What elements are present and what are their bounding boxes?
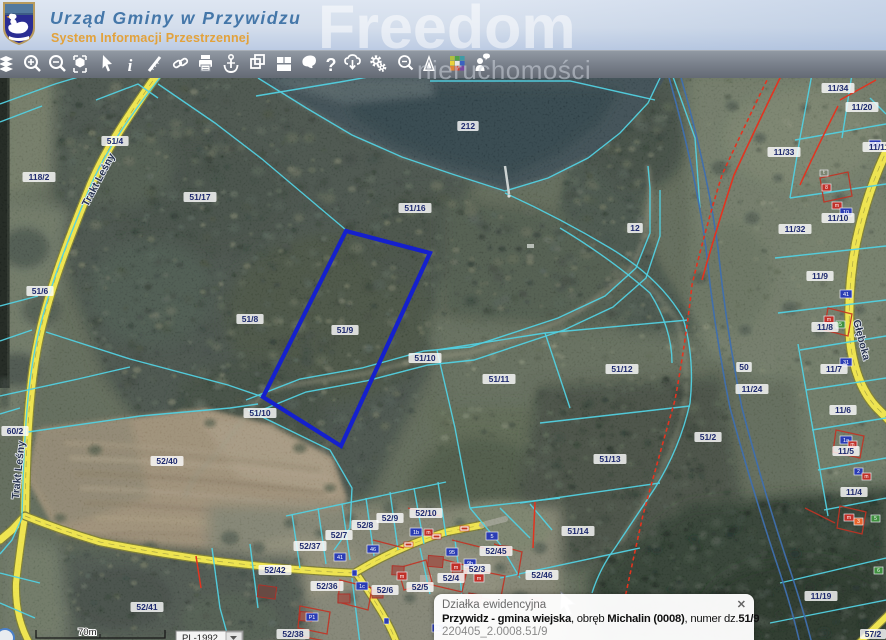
svg-text:m: m bbox=[477, 576, 482, 582]
svg-text:52/4: 52/4 bbox=[443, 573, 460, 583]
svg-text:51/14: 51/14 bbox=[567, 526, 589, 536]
svg-text:52/42: 52/42 bbox=[264, 565, 286, 575]
svg-text:52/9: 52/9 bbox=[382, 513, 399, 523]
svg-text:51/2: 51/2 bbox=[700, 432, 717, 442]
svg-text:m: m bbox=[426, 530, 430, 536]
svg-text:11/10: 11/10 bbox=[828, 213, 849, 223]
svg-text:P1: P1 bbox=[309, 615, 316, 621]
svg-text:51/13: 51/13 bbox=[599, 454, 621, 464]
svg-text:41: 41 bbox=[843, 292, 849, 298]
svg-text:m: m bbox=[835, 203, 839, 209]
svg-text:11/8: 11/8 bbox=[817, 322, 833, 332]
svg-text:11/19: 11/19 bbox=[811, 591, 832, 601]
svg-text:6: 6 bbox=[877, 568, 880, 574]
svg-text:51/11: 51/11 bbox=[489, 374, 510, 384]
svg-text:52/38: 52/38 bbox=[282, 629, 304, 639]
svg-text:11/6: 11/6 bbox=[835, 405, 851, 415]
svg-text:52/5: 52/5 bbox=[412, 582, 429, 592]
svg-text:m: m bbox=[454, 565, 459, 571]
svg-text:m: m bbox=[847, 515, 851, 521]
svg-text:52/37: 52/37 bbox=[299, 541, 321, 551]
svg-text:PL-1992: PL-1992 bbox=[182, 633, 218, 640]
svg-text:51/6: 51/6 bbox=[32, 286, 49, 296]
svg-text:52/10: 52/10 bbox=[415, 508, 437, 518]
svg-text:11/4: 11/4 bbox=[846, 487, 862, 497]
svg-text:1b: 1b bbox=[413, 530, 419, 536]
svg-text:11/5: 11/5 bbox=[838, 446, 854, 456]
svg-text:95: 95 bbox=[449, 550, 455, 556]
svg-text:52/3: 52/3 bbox=[469, 564, 486, 574]
svg-text:11/33: 11/33 bbox=[774, 147, 795, 157]
svg-text:52/36: 52/36 bbox=[316, 581, 338, 591]
svg-text:12: 12 bbox=[630, 223, 640, 233]
svg-text:i: i bbox=[128, 56, 133, 75]
svg-text:m: m bbox=[400, 574, 405, 580]
svg-text:1c: 1c bbox=[359, 584, 365, 590]
svg-text:51/8: 51/8 bbox=[242, 314, 259, 324]
svg-text:50: 50 bbox=[739, 362, 749, 372]
svg-text:51/9: 51/9 bbox=[337, 325, 354, 335]
svg-text:11/24: 11/24 bbox=[742, 384, 763, 394]
svg-text:2: 2 bbox=[857, 469, 860, 475]
svg-text:11/11: 11/11 bbox=[869, 142, 886, 152]
svg-text:52/6: 52/6 bbox=[377, 585, 394, 595]
svg-text:70m: 70m bbox=[78, 627, 97, 638]
svg-text:52/41: 52/41 bbox=[136, 602, 158, 612]
svg-text:51/10: 51/10 bbox=[249, 408, 271, 418]
svg-text:8: 8 bbox=[825, 185, 828, 191]
svg-text:51/17: 51/17 bbox=[189, 192, 211, 202]
svg-text:5: 5 bbox=[874, 516, 877, 522]
svg-text:51/16: 51/16 bbox=[404, 203, 426, 213]
svg-text:11/20: 11/20 bbox=[852, 102, 873, 112]
svg-text:3: 3 bbox=[857, 519, 860, 525]
svg-text:57/2: 57/2 bbox=[865, 629, 882, 639]
svg-text:11/32: 11/32 bbox=[785, 224, 806, 234]
svg-text:118/2: 118/2 bbox=[29, 172, 50, 182]
svg-text:60/2: 60/2 bbox=[7, 426, 24, 436]
svg-text:11/34: 11/34 bbox=[828, 83, 849, 93]
svg-text:212: 212 bbox=[461, 121, 475, 131]
svg-text:41: 41 bbox=[337, 555, 343, 561]
svg-text:5: 5 bbox=[839, 322, 842, 328]
svg-text:51/12: 51/12 bbox=[611, 364, 633, 374]
svg-text:52/40: 52/40 bbox=[156, 456, 178, 466]
svg-text:52/45: 52/45 bbox=[485, 546, 507, 556]
svg-text:51/10: 51/10 bbox=[414, 353, 436, 363]
svg-text:11/9: 11/9 bbox=[812, 271, 828, 281]
svg-text:11/7: 11/7 bbox=[826, 364, 842, 374]
svg-text:m: m bbox=[864, 474, 868, 480]
svg-text:5: 5 bbox=[490, 534, 493, 540]
svg-text:52/8: 52/8 bbox=[357, 520, 374, 530]
svg-text:52/46: 52/46 bbox=[531, 570, 553, 580]
svg-text:51/4: 51/4 bbox=[107, 136, 124, 146]
svg-text:52/7: 52/7 bbox=[331, 530, 348, 540]
svg-text:46: 46 bbox=[370, 547, 376, 553]
